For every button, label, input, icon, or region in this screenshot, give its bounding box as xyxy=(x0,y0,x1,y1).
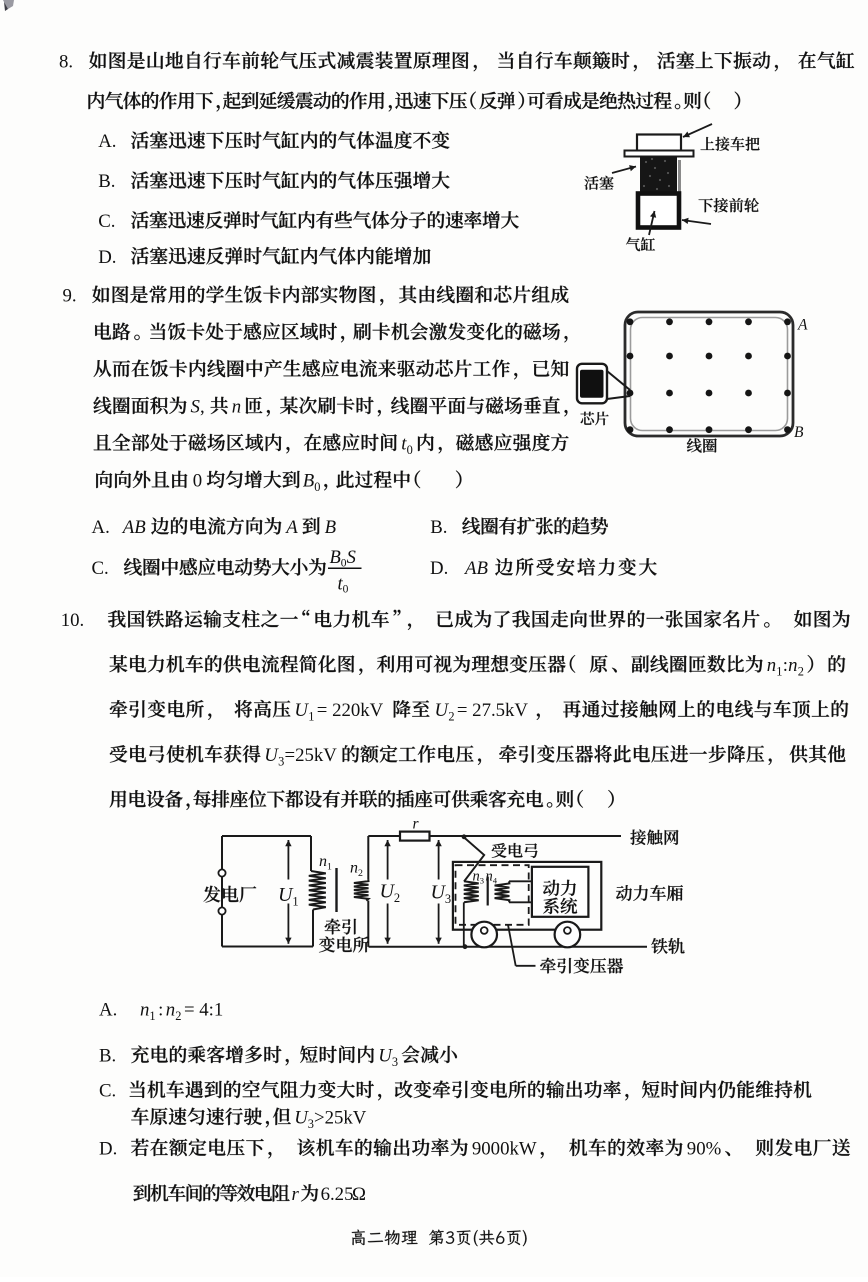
svg-text:D.: D. xyxy=(98,247,116,268)
svg-text:n: n xyxy=(767,655,776,676)
svg-text:A: A xyxy=(797,317,808,334)
svg-text:r: r xyxy=(413,816,420,833)
svg-text:B: B xyxy=(794,424,804,441)
svg-text:U: U xyxy=(435,700,450,721)
svg-text:A.: A. xyxy=(98,131,116,152)
svg-text:n: n xyxy=(473,869,480,885)
svg-text:2: 2 xyxy=(798,665,804,679)
svg-text:n: n xyxy=(486,869,493,885)
svg-text:1: 1 xyxy=(308,710,314,724)
svg-text:AB: AB xyxy=(463,558,488,579)
svg-text:3: 3 xyxy=(445,892,451,906)
svg-text:S: S xyxy=(191,397,201,418)
svg-text:r: r xyxy=(292,1184,300,1205)
svg-text:2: 2 xyxy=(448,710,454,724)
svg-text:8.: 8. xyxy=(59,51,73,72)
svg-text:0: 0 xyxy=(193,471,202,492)
svg-text:n: n xyxy=(232,397,241,418)
svg-text:D.: D. xyxy=(99,1139,117,1160)
svg-text:90%: 90% xyxy=(687,1139,721,1160)
svg-text:n: n xyxy=(319,853,327,870)
svg-text:S: S xyxy=(347,548,356,568)
svg-text::: : xyxy=(158,1000,163,1021)
svg-text:= 220kV: = 220kV xyxy=(317,700,384,721)
svg-text:= 27.5kV: = 27.5kV xyxy=(457,700,529,721)
svg-text:9.: 9. xyxy=(63,286,77,307)
svg-text:4: 4 xyxy=(493,876,498,886)
svg-text:1: 1 xyxy=(327,862,332,873)
svg-text:n: n xyxy=(166,1000,175,1021)
svg-text:D.: D. xyxy=(430,558,448,579)
svg-text:B: B xyxy=(325,517,337,538)
svg-text:0: 0 xyxy=(407,443,413,457)
svg-text:n: n xyxy=(350,860,358,877)
svg-text:A.: A. xyxy=(99,1000,117,1021)
svg-text:n: n xyxy=(140,1000,149,1021)
svg-text:3: 3 xyxy=(480,876,484,886)
svg-text:B.: B. xyxy=(98,171,115,192)
svg-text:0: 0 xyxy=(314,480,320,494)
svg-text:B: B xyxy=(303,471,315,492)
svg-text:B: B xyxy=(330,548,341,568)
svg-text:=25kV: =25kV xyxy=(285,745,338,766)
svg-text:9000kW: 9000kW xyxy=(472,1139,537,1160)
svg-text:B.: B. xyxy=(99,1046,116,1067)
svg-text:2: 2 xyxy=(394,891,400,905)
svg-text:A: A xyxy=(284,517,298,538)
svg-text:= 4:1: = 4:1 xyxy=(184,1000,223,1021)
svg-text:1: 1 xyxy=(292,895,298,909)
svg-text:6.25: 6.25 xyxy=(321,1184,354,1205)
svg-text:B.: B. xyxy=(430,517,447,538)
svg-text:10.: 10. xyxy=(61,610,84,631)
svg-text:C.: C. xyxy=(98,211,115,232)
svg-text:0: 0 xyxy=(343,584,349,596)
svg-text:3: 3 xyxy=(278,755,284,769)
svg-text:n: n xyxy=(788,655,797,676)
svg-text:A.: A. xyxy=(92,517,110,538)
svg-text:>: > xyxy=(314,1108,325,1129)
svg-text:C.: C. xyxy=(99,1081,116,1102)
svg-text:,: , xyxy=(200,397,205,418)
svg-text:U: U xyxy=(294,700,309,721)
svg-text:C.: C. xyxy=(92,558,109,579)
svg-text:2: 2 xyxy=(175,1009,181,1023)
svg-text:U: U xyxy=(264,745,279,766)
svg-text:Ω: Ω xyxy=(352,1184,366,1205)
svg-text:AB: AB xyxy=(121,517,146,538)
svg-text:3: 3 xyxy=(392,1055,398,1069)
svg-text:1: 1 xyxy=(149,1009,155,1023)
svg-text:25kV: 25kV xyxy=(325,1108,367,1129)
svg-text:1: 1 xyxy=(776,665,782,679)
svg-text:2: 2 xyxy=(358,868,363,879)
